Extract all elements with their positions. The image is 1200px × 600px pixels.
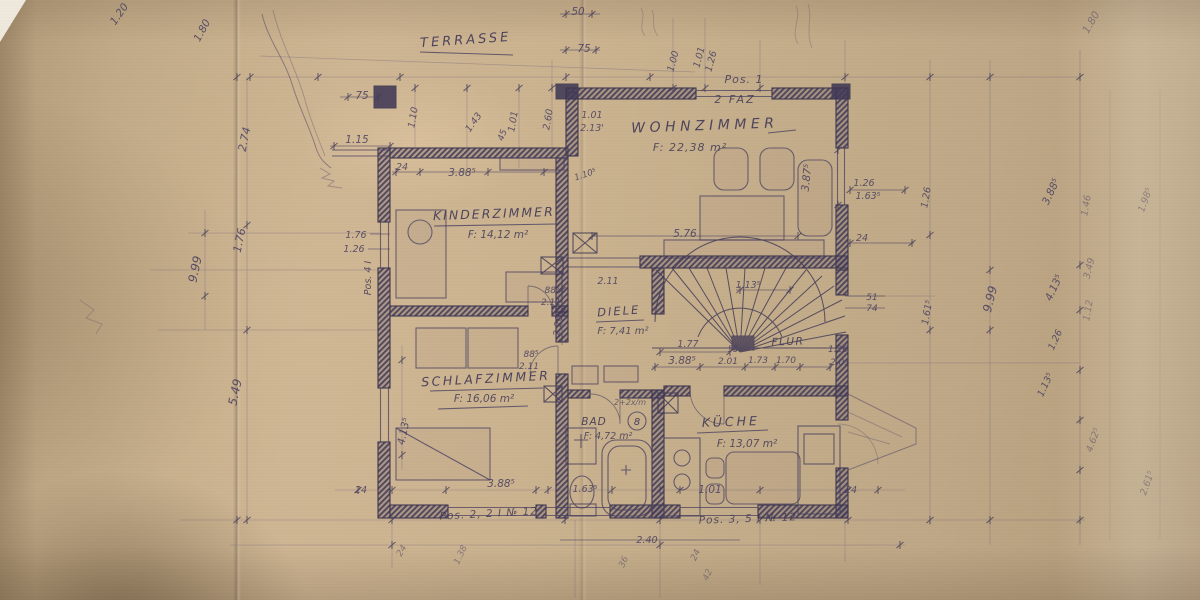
wall-east <box>836 270 848 295</box>
toilet-tank <box>570 504 596 516</box>
dimension-label: 36 <box>617 555 631 570</box>
dimension-tick <box>412 84 419 92</box>
dimension-tick <box>202 292 209 300</box>
dimension-label: 1.61⁵ <box>920 299 935 326</box>
dimension-label: 1.13⁵ <box>1035 371 1056 398</box>
label-underline <box>420 52 513 55</box>
dimension-label: 1.26 <box>343 244 364 255</box>
label-underline <box>596 320 644 322</box>
bed-schlafzimmer <box>416 328 466 368</box>
label-underline <box>438 406 528 409</box>
dimension-tick <box>244 221 251 229</box>
dimension-label: 2.26 <box>552 315 565 337</box>
room-area-wohnzimmer: F: 22,38 m² <box>653 141 727 154</box>
dimension-label: 24 <box>355 485 367 496</box>
burner <box>674 474 690 490</box>
kitchen-table <box>726 452 800 504</box>
room-area-kueche: F: 13,07 m² <box>717 438 778 450</box>
dimension-label: 2.13' <box>580 123 604 134</box>
position-note: Pos. 3, 5 I № 12 <box>699 511 798 526</box>
dimension-label: 24 <box>689 548 703 563</box>
room-label-bad: BAD <box>581 416 606 428</box>
armchair <box>714 148 748 190</box>
dimension-label: 5.76 <box>673 228 697 240</box>
dimension-label: 1.10 <box>406 106 421 129</box>
dimension-label: 1.80 <box>192 17 214 44</box>
dimension-tick <box>1077 261 1084 269</box>
dimension-label: 1.63⁵ <box>856 191 881 202</box>
wall-kinderzimmer-north <box>390 148 568 158</box>
position-note: Pos. 1 <box>724 73 763 86</box>
shelf <box>500 158 564 170</box>
radiator <box>572 366 598 384</box>
dimension-label: 1.70 <box>776 356 796 366</box>
dimension-label: 1.80 <box>1080 9 1102 36</box>
pillow <box>408 220 432 244</box>
bathtub-inner <box>608 446 646 510</box>
dimension-tick <box>927 326 934 334</box>
dimension-label: 4.13⁵ <box>1043 273 1066 303</box>
dimension-tick <box>464 84 471 92</box>
dimension-label: 1.01 <box>581 110 602 121</box>
dimension-tick <box>1077 466 1084 474</box>
dimension-label: 1.76 <box>231 227 249 254</box>
dimension-tick <box>549 84 556 92</box>
dimension-label: 24 <box>396 162 408 173</box>
dimension-label: 2.74 <box>236 126 254 153</box>
dimension-label: 1.98⁵ <box>1136 186 1155 213</box>
wall-west <box>378 268 390 388</box>
burner <box>674 450 690 466</box>
label-underline <box>434 224 556 226</box>
dimension-label: 4.62⁵ <box>1084 426 1103 453</box>
room-label-kueche: KÜCHE <box>701 412 760 430</box>
dimension-label: 1.26 <box>853 178 874 189</box>
blueprint-paper: TERRASSE WOHNZIMMER F: 22,38 m² KINDERZI… <box>0 0 1200 600</box>
dimension-label: 1.15 <box>345 134 369 146</box>
dimension-label: 2.01 <box>718 357 738 367</box>
dimension-tick <box>234 73 241 81</box>
chair <box>706 458 724 478</box>
wall-wohnzimmer-west <box>566 92 578 156</box>
wall-stair-west <box>652 268 664 314</box>
dimension-label: 2.11 <box>519 362 539 372</box>
circled-number-value: 8 <box>634 417 640 428</box>
dimension-label: 1.46 <box>1079 194 1094 217</box>
dimension-tick <box>1077 416 1084 424</box>
dimension-label: 1.76 <box>345 230 366 241</box>
dimension-label: 42 <box>701 568 715 583</box>
dimension-label: 9.99 <box>185 255 204 284</box>
dimension-label: 88⁵ <box>544 286 559 296</box>
room-area-bad: F: 4,72 m² <box>584 431 633 442</box>
table <box>700 196 784 240</box>
room-area-diele: F: 7,41 m² <box>597 326 648 337</box>
position-note: 2 FAZ <box>714 93 755 106</box>
dimension-label: 50 <box>571 6 585 18</box>
dimension-tick <box>927 231 934 239</box>
room-label-wohnzimmer: WOHNZIMMER <box>631 115 779 136</box>
dimension-label: 3.88⁵ <box>1040 177 1063 207</box>
dimension-tick <box>987 266 994 274</box>
room-area-schlafzimmer: F: 16,06 m² <box>454 393 515 405</box>
dimension-label: 1.26 <box>919 186 934 209</box>
dimension-label: 1.13⁵ <box>736 280 761 291</box>
room-label-kinderzimmer: KINDERZIMMER <box>433 204 555 223</box>
wall-west <box>378 148 390 222</box>
dimension-label: 1.43 <box>463 111 484 135</box>
dimension-label: 2.01 <box>830 358 850 368</box>
dimension-label: 3.49 <box>1082 257 1098 280</box>
dimension-tick <box>987 326 994 334</box>
room-area-kinderzimmer: F: 14,12 m² <box>468 229 529 241</box>
position-note: 2+2x/m <box>614 398 646 407</box>
dimension-label: 3.88⁵ <box>487 478 515 490</box>
dimension-label: 2.11 <box>541 298 561 308</box>
armchair <box>760 148 794 190</box>
floor-plan-drawing: TERRASSE WOHNZIMMER F: 22,38 m² KINDERZI… <box>0 0 1200 600</box>
wall-kueche-north <box>724 386 848 396</box>
position-note: Pos. 4 I <box>363 261 374 296</box>
wall-wohnzimmer-north <box>566 88 696 99</box>
room-label-diele: DIELE <box>597 303 641 320</box>
dimension-label: 2.61⁵ <box>1138 469 1157 496</box>
wall-west <box>378 442 390 518</box>
bed-schlafzimmer <box>468 328 518 368</box>
dimension-label: 1.00 <box>666 50 682 73</box>
dimension-label: 3.88⁵ <box>448 167 476 179</box>
dimension-label: 55 <box>728 345 739 355</box>
dimension-label: 1.26 <box>1046 328 1065 352</box>
dimension-label: 1.63⁵ <box>573 484 598 495</box>
dimension-tick <box>399 356 406 364</box>
dimension-label: 3.88⁵ <box>668 355 696 367</box>
dimension-label: 5.49 <box>225 378 244 407</box>
dimension-label: 1.01 <box>698 484 721 496</box>
dimension-label: 88⁵ <box>523 350 538 360</box>
dimension-tick <box>516 84 523 92</box>
dimension-label: 75 <box>355 90 369 102</box>
dimension-label: 2.11 <box>597 276 618 287</box>
wall-bad-north <box>568 390 590 398</box>
dimension-label: 1.20 <box>108 1 131 27</box>
bathtub-drain <box>621 465 631 475</box>
dimension-label: 9.99 <box>980 284 1000 313</box>
dimension-label: 51 <box>866 293 877 303</box>
kitchen-sink <box>804 434 834 464</box>
wall-wohnzimmer-east <box>836 88 848 148</box>
dimension-label: 1.38 <box>452 544 470 567</box>
label-underline <box>430 388 543 391</box>
dimension-label: 24 <box>395 543 410 558</box>
dimension-label: 1.10⁵ <box>573 167 598 184</box>
room-label-flur: FLUR <box>771 335 804 348</box>
dimension-label: 75 <box>577 43 591 55</box>
sideboard <box>664 240 824 258</box>
cabinet <box>604 366 638 382</box>
room-label-terrasse: TERRASSE <box>420 30 512 51</box>
dimension-label: 74 <box>866 304 878 314</box>
dimension-label: 1.26 <box>828 345 848 355</box>
dimension-tick <box>1077 366 1084 374</box>
dimension-label: 1.73 <box>748 356 768 366</box>
dimension-label: 2.40 <box>636 535 657 546</box>
dimension-label: 1.77 <box>677 339 698 350</box>
dimension-label: 2.60 <box>541 108 556 131</box>
label-underline <box>697 430 768 433</box>
dimension-label: 24 <box>845 485 857 496</box>
dimension-label: 24 <box>856 233 868 244</box>
exterior-steps <box>848 394 916 470</box>
dimension-label: 1.12 <box>1081 299 1096 322</box>
wall-kinderzimmer-south <box>390 306 528 316</box>
